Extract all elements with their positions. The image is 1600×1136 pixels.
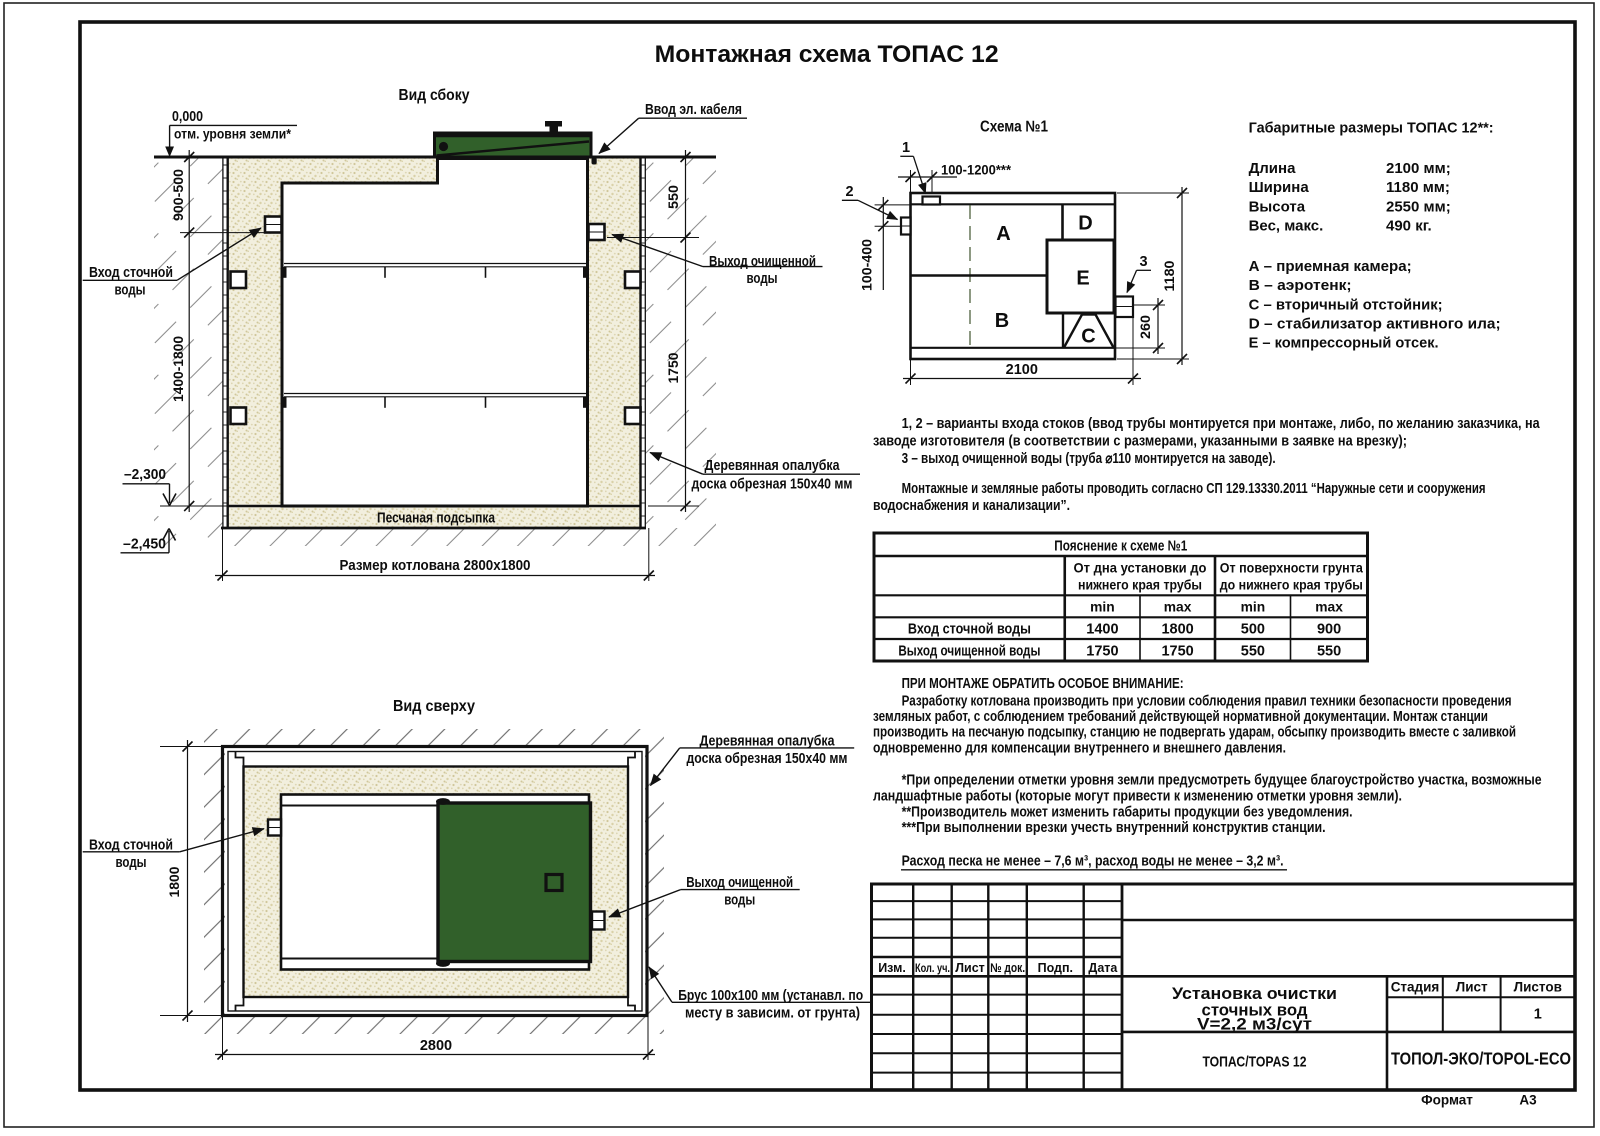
svg-text:Выход очищенной: Выход очищенной — [709, 254, 816, 270]
svg-text:А – приемная камера;: А – приемная камера; — [1249, 258, 1412, 275]
svg-text:490 кг.: 490 кг. — [1386, 218, 1432, 235]
svg-text:*При определении отметки уровн: *При определении отметки уровня земли пр… — [902, 773, 1542, 789]
svg-text:Монтажная схема ТОПАС 12: Монтажная схема ТОПАС 12 — [655, 41, 999, 68]
svg-text:С: С — [1081, 326, 1095, 348]
svg-text:ТОПАС/TOPAS 12: ТОПАС/TOPAS 12 — [1203, 1054, 1307, 1071]
svg-text:1750: 1750 — [666, 353, 681, 384]
svg-text:1750: 1750 — [1161, 644, 1193, 660]
svg-text:max: max — [1315, 600, 1343, 615]
svg-text:2: 2 — [845, 184, 853, 200]
svg-text:Габаритные размеры ТОПАС 12**:: Габаритные размеры ТОПАС 12**: — [1249, 120, 1494, 137]
svg-text:ТОПОЛ-ЭКО/TOPOL-ECO: ТОПОЛ-ЭКО/TOPOL-ECO — [1391, 1049, 1571, 1069]
svg-text:max: max — [1164, 600, 1192, 615]
svg-text:воды: воды — [116, 855, 147, 871]
svg-text:1180: 1180 — [1162, 261, 1177, 292]
svg-text:месту в зависим. от грунта): месту в зависим. от грунта) — [685, 1005, 860, 1021]
svg-text:–2,300: –2,300 — [124, 467, 166, 483]
svg-text:доска обрезная 150х40 мм: доска обрезная 150х40 мм — [692, 477, 853, 493]
svg-text:Деревянная опалубка: Деревянная опалубка — [705, 458, 841, 474]
svg-text:Размер котлована 2800х1800: Размер котлована 2800х1800 — [340, 558, 531, 574]
svg-text:–2,450: –2,450 — [123, 537, 166, 553]
svg-text:Лист: Лист — [1456, 980, 1488, 995]
svg-text:260: 260 — [1138, 315, 1153, 339]
svg-text:min: min — [1090, 600, 1115, 615]
svg-text:нижнего края трубы: нижнего края трубы — [1078, 578, 1202, 593]
svg-text:550: 550 — [1317, 644, 1341, 660]
svg-text:1750: 1750 — [1086, 644, 1118, 660]
svg-text:**Производитель может изменить: **Производитель может изменить габариты … — [902, 805, 1353, 821]
svg-text:Ввод эл. кабеля: Ввод эл. кабеля — [645, 102, 742, 118]
svg-text:0,000: 0,000 — [172, 109, 203, 125]
svg-text:А: А — [996, 223, 1010, 245]
svg-text:1800: 1800 — [1161, 622, 1193, 638]
svg-text:1: 1 — [902, 140, 910, 156]
svg-text:Установка очистки: Установка очистки — [1172, 985, 1337, 1003]
svg-text:3: 3 — [1139, 254, 1147, 270]
svg-text:Пояснение к схеме №1: Пояснение к схеме №1 — [1054, 539, 1187, 555]
svg-text:Вес, макс.: Вес, макс. — [1249, 218, 1324, 235]
svg-text:1, 2 – варианты входа стоков: 1, 2 – варианты входа стоков (ввод трубы… — [902, 416, 1541, 432]
svg-text:900: 900 — [1317, 622, 1341, 638]
svg-text:ландшафтные работы (которые мо: ландшафтные работы (которые могут привес… — [873, 789, 1402, 805]
svg-text:D – стабилизатор активного ила: D – стабилизатор активного ила; — [1249, 316, 1501, 333]
svg-text:В – аэротенк;: В – аэротенк; — [1249, 277, 1352, 294]
svg-text:2100: 2100 — [1006, 362, 1038, 378]
svg-text:min: min — [1241, 600, 1266, 615]
svg-text:900-500: 900-500 — [171, 169, 186, 221]
svg-text:Дата: Дата — [1088, 961, 1118, 975]
svg-text:Песчаная подсыпка: Песчаная подсыпка — [377, 511, 496, 527]
svg-text:воды: воды — [747, 271, 778, 287]
svg-text:земляных работ, с соблюдением: земляных работ, с соблюдением требований… — [873, 709, 1488, 725]
svg-text:Схема №1: Схема №1 — [980, 119, 1048, 136]
svg-text:500: 500 — [1241, 622, 1265, 638]
svg-text:Е – компрессорный отсек.: Е – компрессорный отсек. — [1249, 335, 1439, 352]
svg-text:№ док.: № док. — [990, 961, 1025, 975]
svg-text:отм. уровня земли*: отм. уровня земли* — [174, 127, 292, 142]
svg-text:Вход сточной: Вход сточной — [89, 265, 173, 281]
svg-text:доска обрезная 150х40 мм: доска обрезная 150х40 мм — [687, 751, 848, 767]
svg-text:А3: А3 — [1519, 1093, 1537, 1108]
svg-text:3 – выход очищенной воды (труб: 3 – выход очищенной воды (труба ⌀110 мон… — [902, 451, 1276, 467]
svg-text:Выход очищенной: Выход очищенной — [686, 875, 793, 891]
svg-text:D: D — [1078, 213, 1092, 235]
svg-text:1400-1800: 1400-1800 — [171, 336, 186, 402]
svg-text:550: 550 — [666, 185, 681, 209]
svg-text:Брус 100х100 мм (устанавл. по: Брус 100х100 мм (устанавл. по — [678, 988, 863, 1004]
svg-text:2800: 2800 — [420, 1038, 452, 1054]
svg-text:Длина: Длина — [1249, 160, 1296, 177]
svg-text:Листов: Листов — [1514, 980, 1562, 995]
svg-text:воды: воды — [115, 283, 146, 299]
svg-text:Деревянная опалубка: Деревянная опалубка — [700, 733, 836, 749]
svg-text:Монтажные и земляные работы пр: Монтажные и земляные работы проводить со… — [902, 481, 1486, 497]
svg-text:заводе изготовителя (в соответ: заводе изготовителя (в соответствии с ра… — [873, 434, 1407, 450]
svg-text:V=2,2 м3/сут: V=2,2 м3/сут — [1197, 1016, 1312, 1034]
svg-text:Расход песка не менее – 7,6 м³: Расход песка не менее – 7,6 м³, расход в… — [902, 854, 1284, 870]
svg-text:1400: 1400 — [1086, 622, 1118, 638]
svg-text:до нижнего края трубы: до нижнего края трубы — [1220, 578, 1363, 593]
svg-text:Кол. уч.: Кол. уч. — [915, 963, 950, 975]
svg-text:550: 550 — [1241, 644, 1265, 660]
svg-text:От поверхности грунта: От поверхности грунта — [1220, 561, 1363, 576]
svg-text:одновременно для компенсации в: одновременно для компенсации внутреннего… — [873, 741, 1286, 757]
svg-text:100-1200***: 100-1200*** — [941, 162, 1012, 178]
svg-text:ПРИ МОНТАЖЕ ОБРАТИТЬ ОСОБОЕ ВН: ПРИ МОНТАЖЕ ОБРАТИТЬ ОСОБОЕ ВНИМАНИЕ: — [902, 676, 1184, 692]
svg-text:Формат: Формат — [1421, 1093, 1473, 1108]
svg-text:1180 мм;: 1180 мм; — [1386, 179, 1450, 196]
svg-text:С – вторичный отстойник;: С – вторичный отстойник; — [1249, 297, 1443, 314]
svg-text:Стадия: Стадия — [1391, 980, 1440, 995]
svg-text:Лист: Лист — [955, 961, 985, 975]
svg-text:Изм.: Изм. — [878, 961, 906, 975]
svg-text:1800: 1800 — [167, 867, 182, 898]
svg-text:Разработку котлована производи: Разработку котлована производить при усл… — [902, 694, 1512, 710]
svg-text:производить на песчаную подсып: производить на песчаную подсыпку, станци… — [873, 725, 1516, 741]
svg-text:Вход сточной воды: Вход сточной воды — [908, 622, 1031, 638]
svg-text:Вид сверху: Вид сверху — [393, 698, 475, 715]
svg-text:2550 мм;: 2550 мм; — [1386, 199, 1451, 216]
svg-text:Выход очищенной воды: Выход очищенной воды — [898, 644, 1040, 660]
svg-text:водоснабжения и канализации”.: водоснабжения и канализации”. — [873, 498, 1070, 514]
svg-text:Высота: Высота — [1249, 199, 1306, 216]
svg-text:Е: Е — [1076, 268, 1089, 290]
svg-text:От дна установки до: От дна установки до — [1074, 561, 1207, 576]
svg-text:Подп.: Подп. — [1038, 961, 1073, 975]
svg-text:Вид сбоку: Вид сбоку — [399, 87, 470, 104]
svg-text:Вход сточной: Вход сточной — [89, 837, 173, 853]
svg-text:В: В — [995, 310, 1009, 332]
svg-text:100-400: 100-400 — [860, 239, 875, 291]
svg-text:2100 мм;: 2100 мм; — [1386, 160, 1451, 177]
svg-text:воды: воды — [724, 893, 755, 909]
svg-text:1: 1 — [1534, 1007, 1542, 1023]
svg-text:Ширина: Ширина — [1249, 179, 1310, 196]
svg-text:***При выполнении врезки учест: ***При выполнении врезки учесть внутренн… — [902, 820, 1326, 836]
